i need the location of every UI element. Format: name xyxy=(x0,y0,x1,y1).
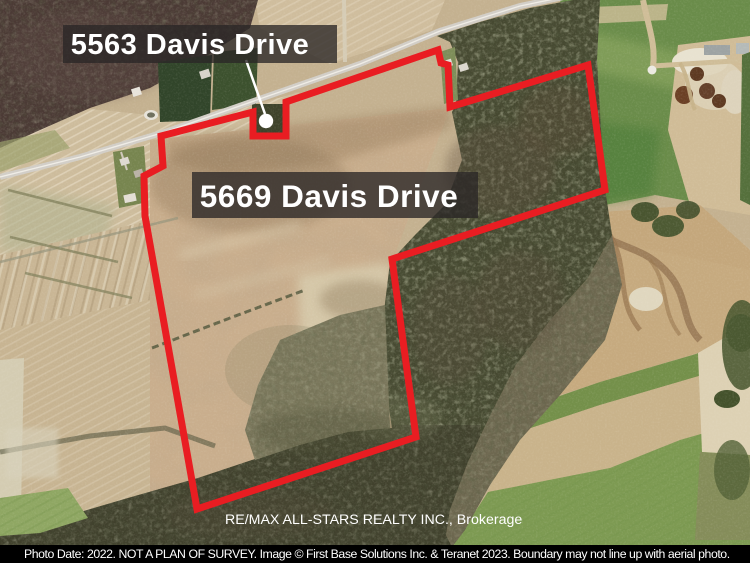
svg-text:5669 Davis Drive: 5669 Davis Drive xyxy=(200,178,458,214)
svg-text:RE/MAX ALL-STARS REALTY INC.,: RE/MAX ALL-STARS REALTY INC., Brokerage xyxy=(225,512,522,528)
svg-text:5563 Davis Drive: 5563 Davis Drive xyxy=(71,29,310,61)
svg-text:Photo Date: 2022. NOT A PLAN O: Photo Date: 2022. NOT A PLAN OF SURVEY. … xyxy=(24,547,730,561)
